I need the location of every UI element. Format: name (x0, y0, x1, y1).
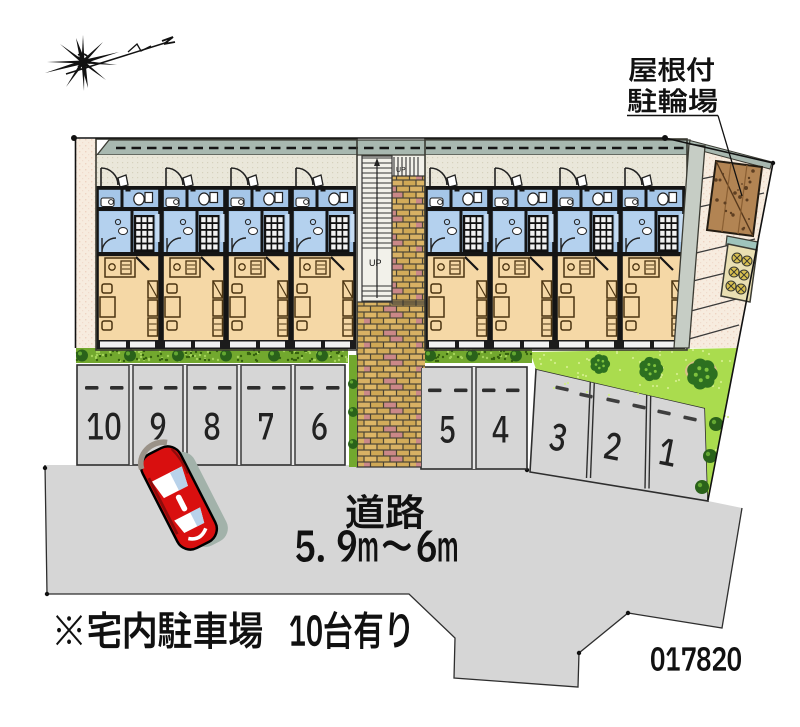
svg-text:UP: UP (396, 167, 406, 174)
svg-text:UP: UP (369, 258, 382, 268)
